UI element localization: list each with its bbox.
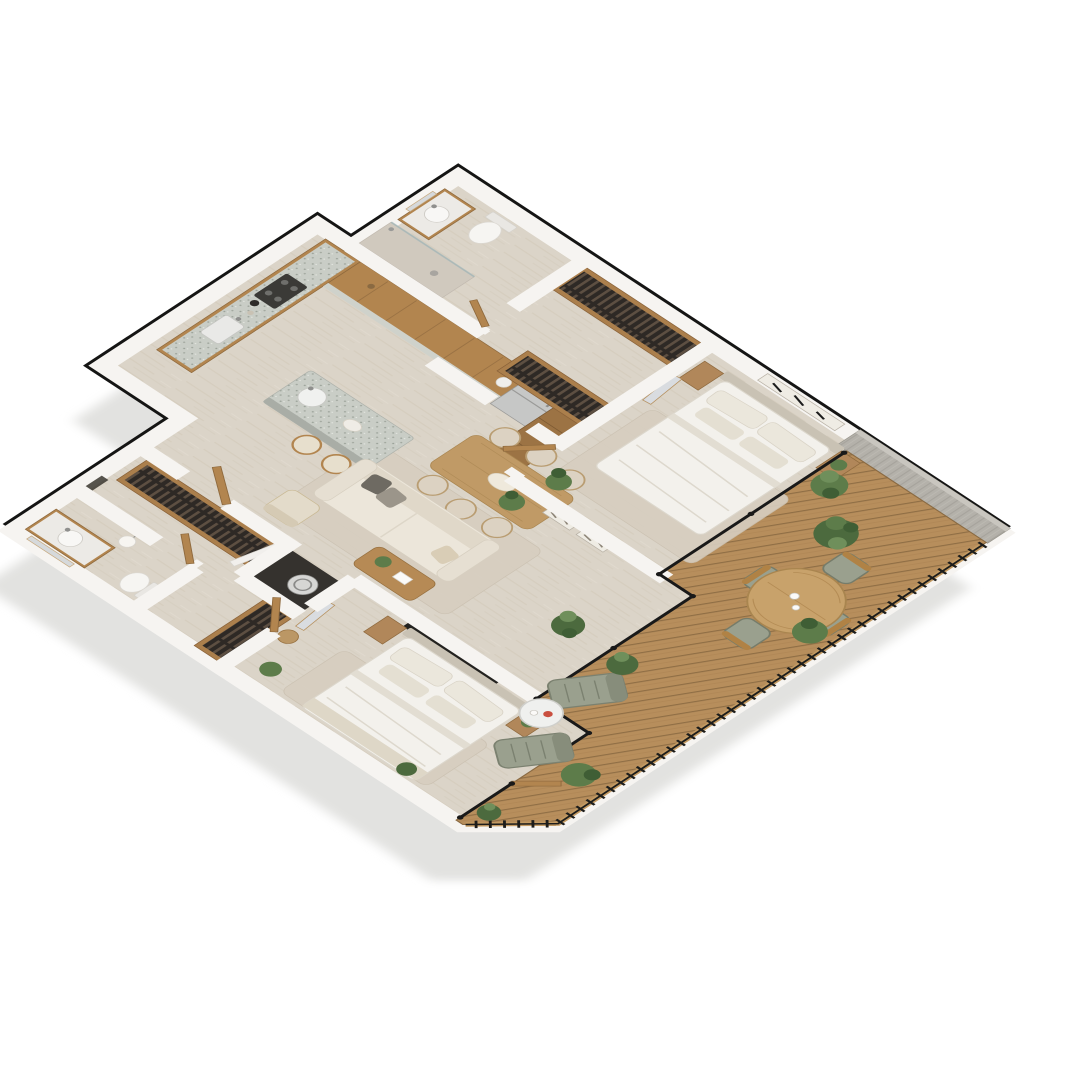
floor-plan-stage: Isometric 3D floor plan of a two-bedroom… [0, 0, 1081, 1081]
deck-glass-door [512, 781, 561, 786]
floor-plan-render: Isometric 3D floor plan of a two-bedroom… [0, 0, 1081, 1081]
